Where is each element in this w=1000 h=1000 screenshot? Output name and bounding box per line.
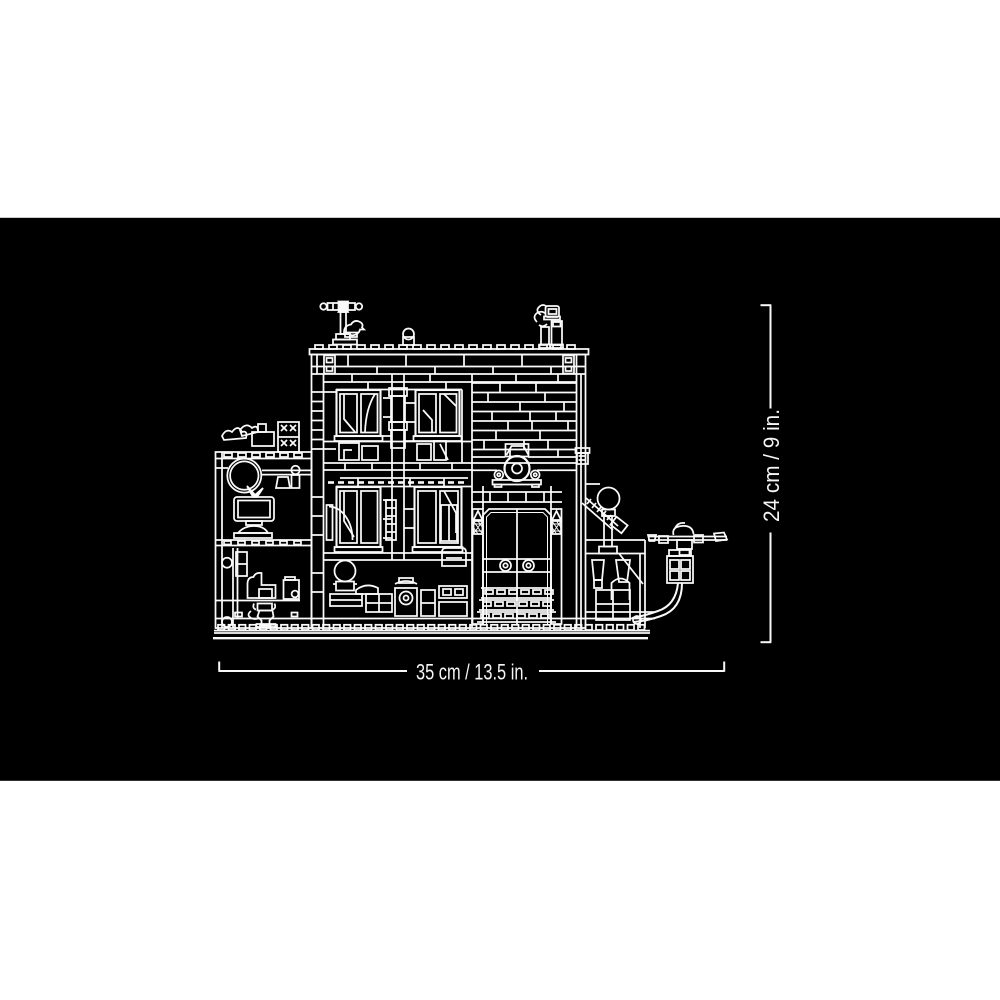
svg-text:35 cm / 13.5 in.: 35 cm / 13.5 in.: [416, 660, 528, 685]
svg-text:24 cm / 9 in.: 24 cm / 9 in.: [759, 409, 784, 522]
